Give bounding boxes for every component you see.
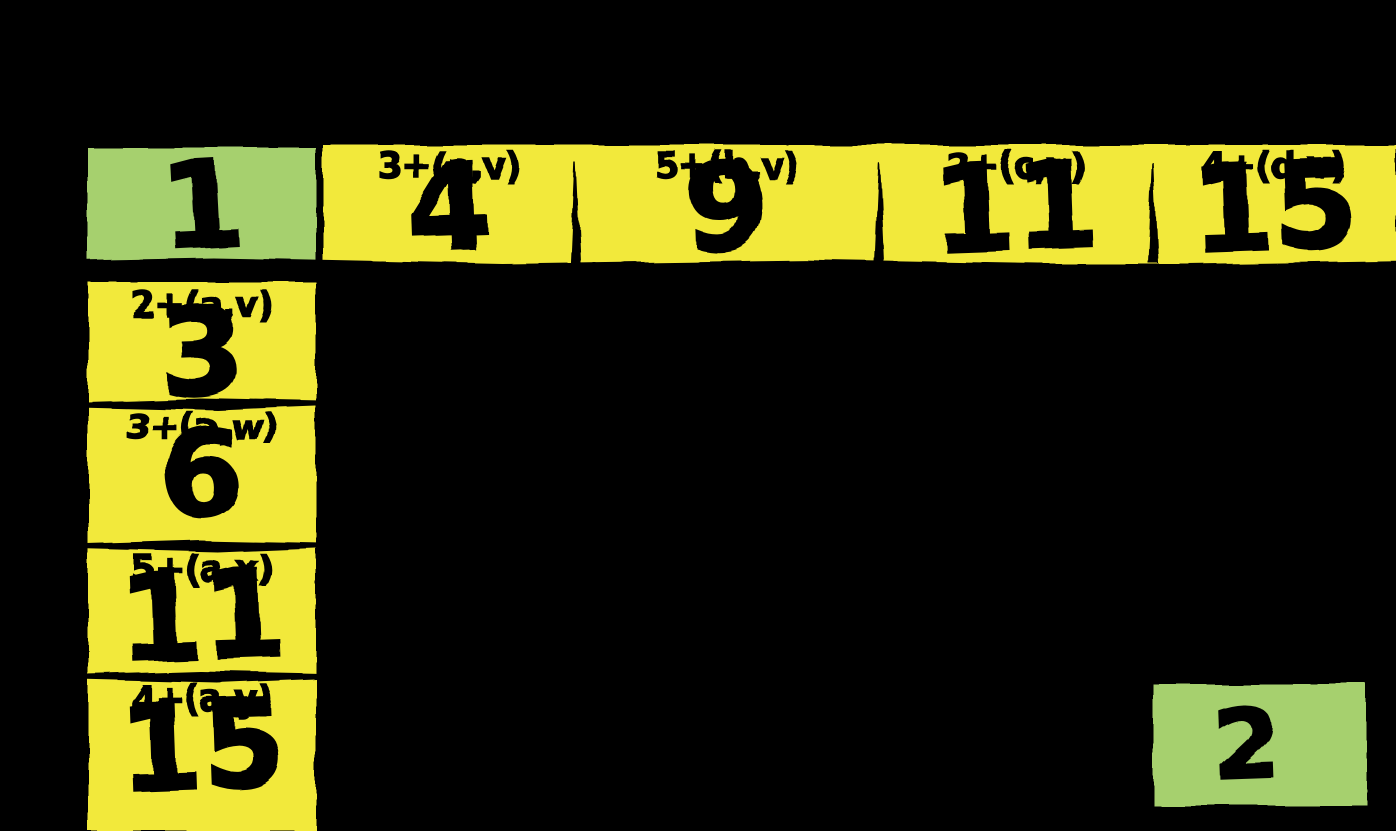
result-cell-value: 2 bbox=[1211, 704, 1308, 786]
cell-value: 15 bbox=[117, 696, 287, 800]
cell-value: 15 bbox=[1189, 157, 1359, 261]
result-cell: 2 bbox=[1153, 684, 1367, 805]
table-scene: 1 3+(a,v) 4 5+(b,v) 9 2+(c,v) 11 4+(d,v)… bbox=[0, 0, 1396, 831]
start-cell: 1 bbox=[88, 148, 316, 262]
left-column-cell-aw: 3+(a,w) 6 bbox=[88, 406, 316, 542]
left-column-cell-ax: 5+(a,x) 11 bbox=[88, 548, 316, 674]
cell-value: 6 bbox=[159, 425, 246, 526]
cell-value: 9 bbox=[683, 158, 770, 259]
start-cell-value: 1 bbox=[158, 155, 245, 256]
cell-value: 11 bbox=[117, 566, 287, 670]
top-row-cell-cv: 2+(c,v) 11 bbox=[878, 145, 1152, 265]
left-column-cell-av: 2+(a,v) 3 bbox=[88, 284, 316, 402]
cell-value: 11 bbox=[930, 157, 1100, 261]
top-row-cell-bv: 5+(b,v) 9 bbox=[575, 145, 922, 265]
cell-value: 3 bbox=[159, 303, 246, 404]
top-row-cell-v: 3+(a,v) 4 bbox=[323, 145, 575, 265]
top-row-cell-dv: 4+(d,v) 15 bbox=[1152, 145, 1396, 265]
cell-value: 4 bbox=[406, 158, 493, 259]
left-column-cell-ay: 4+(a,y) 15 bbox=[88, 678, 316, 831]
hand-drawn-table: 1 3+(a,v) 4 5+(b,v) 9 2+(c,v) 11 4+(d,v)… bbox=[0, 0, 1396, 831]
